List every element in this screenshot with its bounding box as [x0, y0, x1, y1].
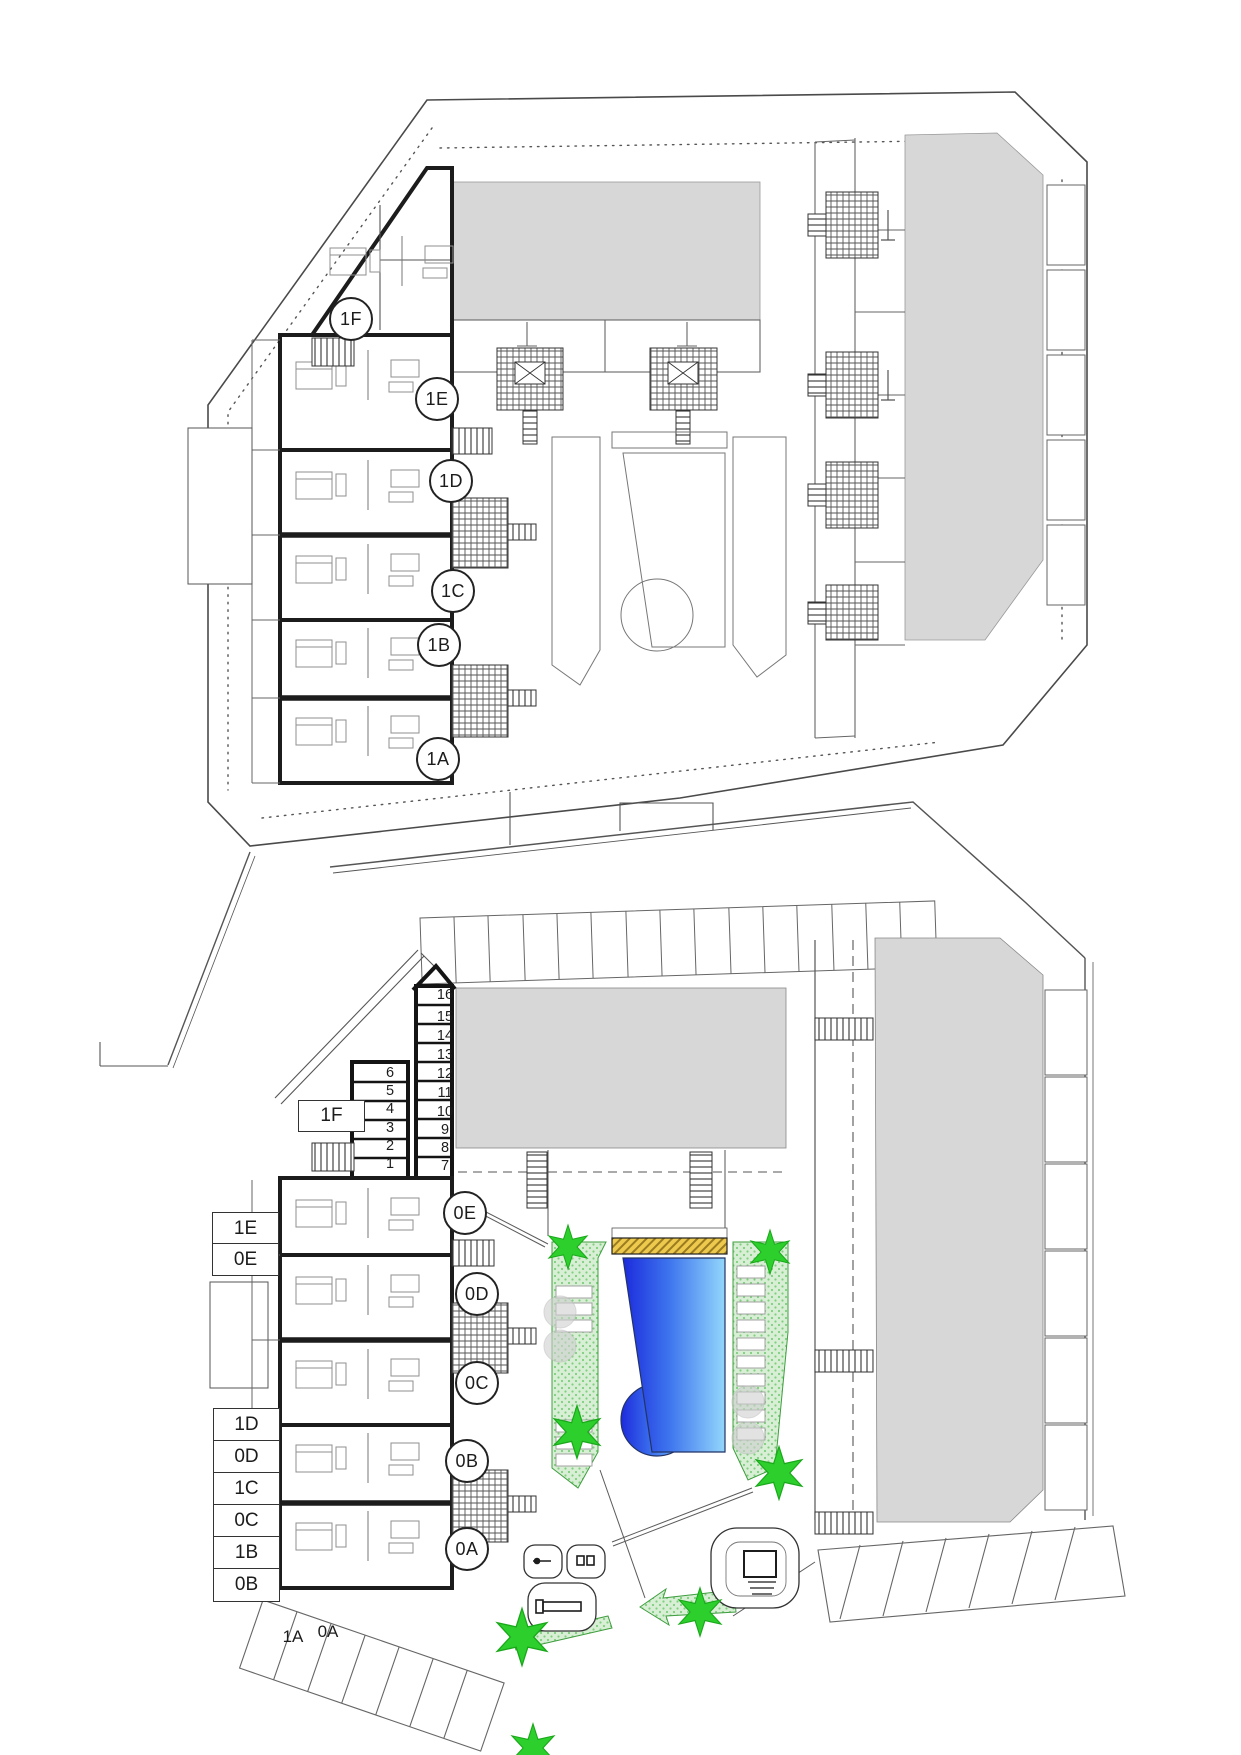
right-stair-clusters — [808, 192, 895, 640]
assign-box-0B: 0B — [213, 1568, 280, 1602]
storage-11: 11 — [432, 1084, 458, 1102]
roof-top-building-lower — [456, 988, 786, 1148]
assign-box-1D: 1D — [213, 1408, 280, 1442]
right-parking-stalls-lower — [1045, 990, 1087, 1510]
stair-courtyard-right — [690, 1152, 712, 1208]
unit-circle-1E: 1E — [415, 377, 459, 421]
assign-box-0C: 0C — [213, 1504, 280, 1538]
storage-block — [275, 950, 455, 1180]
right-parking-stalls — [1047, 185, 1085, 605]
block-stair-cluster-1 — [452, 498, 536, 568]
unit-circle-0E: 0E — [443, 1191, 487, 1235]
left-annex-outline-lower — [210, 1282, 268, 1388]
roof-top-building — [450, 182, 760, 320]
stair-right-1 — [815, 1018, 873, 1040]
unit-circle-1C: 1C — [431, 569, 475, 613]
unit-circle-1B: 1B — [417, 623, 461, 667]
stair-1F — [312, 338, 354, 366]
site-plan-drawing — [0, 0, 1241, 1755]
parking-row-bottom-right — [818, 1526, 1125, 1622]
storage-14: 14 — [432, 1027, 458, 1045]
storage-2: 2 — [377, 1137, 403, 1155]
assign-box-1B: 1B — [213, 1536, 280, 1570]
first-floor-plan — [188, 92, 1087, 846]
stair-courtyard-left — [527, 1152, 547, 1208]
parking-row-bottom-left — [240, 1600, 505, 1751]
storage-5: 5 — [377, 1082, 403, 1100]
storage-13: 13 — [432, 1046, 458, 1064]
parking-label-1A: 1A — [278, 1626, 308, 1648]
unit-circle-0D: 0D — [455, 1272, 499, 1316]
stair-right-2 — [815, 1350, 873, 1372]
pool-edge-strip — [612, 1228, 727, 1238]
parking-label-0A: 0A — [313, 1621, 343, 1643]
storage-12: 12 — [432, 1065, 458, 1083]
unit-circle-1D: 1D — [429, 459, 473, 503]
storage-7: 7 — [432, 1157, 458, 1175]
storage-16: 16 — [432, 986, 458, 1004]
stair-1E — [452, 428, 492, 454]
storage-6: 6 — [377, 1064, 403, 1082]
assign-box-0E: 0E — [212, 1243, 279, 1276]
roof-right-building-lower — [875, 938, 1043, 1522]
ground-floor-plan — [100, 852, 1125, 1755]
pool-deck — [612, 1238, 727, 1254]
storage-8: 8 — [432, 1139, 458, 1157]
unit-circle-1A: 1A — [416, 737, 460, 781]
unit-circle-0C: 0C — [455, 1361, 499, 1405]
assign-box-0D: 0D — [213, 1440, 280, 1474]
storage-4: 4 — [377, 1100, 403, 1118]
stair-entry — [312, 1143, 354, 1171]
top-parking-row — [420, 901, 937, 984]
storage-3: 3 — [377, 1119, 403, 1137]
stair-right-3 — [815, 1512, 873, 1534]
floorplan-sheet: 1F 1E 1D 1C 1B 1A 0E 0D 0C 0B 0A 1F 1E 0… — [0, 0, 1241, 1755]
roof-right-building — [905, 133, 1043, 640]
assign-box-1F: 1F — [298, 1100, 365, 1132]
unit-circle-0A: 0A — [445, 1527, 489, 1571]
street-band — [330, 792, 1085, 958]
storage-15: 15 — [432, 1008, 458, 1026]
block-stair-cluster-2 — [452, 665, 536, 737]
courtyard-stair-clusters — [497, 348, 717, 444]
assign-box-1E: 1E — [212, 1212, 279, 1245]
unit-circle-0B: 0B — [445, 1439, 489, 1483]
courtyard-outline — [552, 432, 786, 685]
storage-9: 9 — [432, 1121, 458, 1139]
unit-circle-1F: 1F — [329, 297, 373, 341]
left-annex-outline — [188, 428, 252, 584]
storage-1: 1 — [377, 1155, 403, 1173]
storage-10: 10 — [432, 1103, 458, 1121]
assign-box-1C: 1C — [213, 1472, 280, 1506]
